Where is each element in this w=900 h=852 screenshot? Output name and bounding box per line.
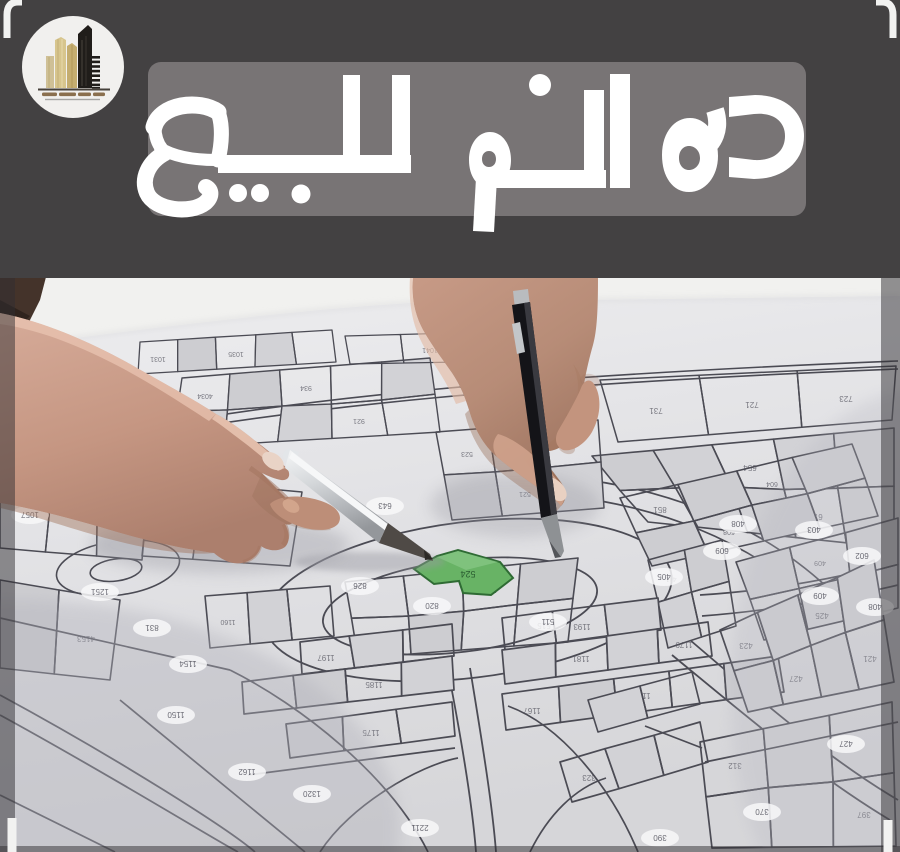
svg-text:1162: 1162 [238,767,256,776]
svg-text:1197: 1197 [317,653,335,662]
svg-text:1181: 1181 [572,654,590,663]
svg-text:409: 409 [813,591,827,600]
svg-text:1160: 1160 [220,618,235,625]
svg-text:820: 820 [425,601,439,610]
svg-text:370: 370 [755,807,769,816]
svg-text:1150: 1150 [167,710,185,719]
svg-text:1031: 1031 [150,355,166,362]
svg-text:1035: 1035 [228,350,244,357]
svg-text:602: 602 [855,551,869,560]
svg-text:408: 408 [868,602,882,611]
svg-text:408: 408 [731,519,745,528]
svg-text:524: 524 [460,569,475,579]
svg-text:609: 609 [715,546,729,555]
svg-text:604: 604 [766,480,778,487]
svg-text:831: 831 [145,623,159,632]
svg-text:4034: 4034 [197,392,213,399]
svg-text:851: 851 [653,505,667,514]
svg-text:643: 643 [378,501,392,510]
svg-text:1179: 1179 [675,640,693,649]
svg-text:731: 731 [649,406,663,415]
svg-text:405: 405 [657,572,671,581]
svg-text:511: 511 [541,617,554,626]
svg-text:1185: 1185 [365,680,383,689]
svg-text:390: 390 [653,833,667,842]
svg-text:934: 934 [300,384,312,391]
svg-text:721: 721 [745,400,759,409]
svg-text:1320: 1320 [303,789,321,798]
svg-text:427: 427 [839,739,853,748]
svg-text:1251: 1251 [91,587,109,596]
svg-text:723: 723 [839,394,853,403]
svg-text:1154: 1154 [179,659,197,668]
svg-text:826: 826 [353,581,367,590]
svg-text:403: 403 [807,525,821,534]
svg-text:2211: 2211 [411,823,429,832]
svg-text:523: 523 [461,450,473,457]
svg-text:921: 921 [353,417,365,424]
svg-text:1193: 1193 [573,622,591,631]
